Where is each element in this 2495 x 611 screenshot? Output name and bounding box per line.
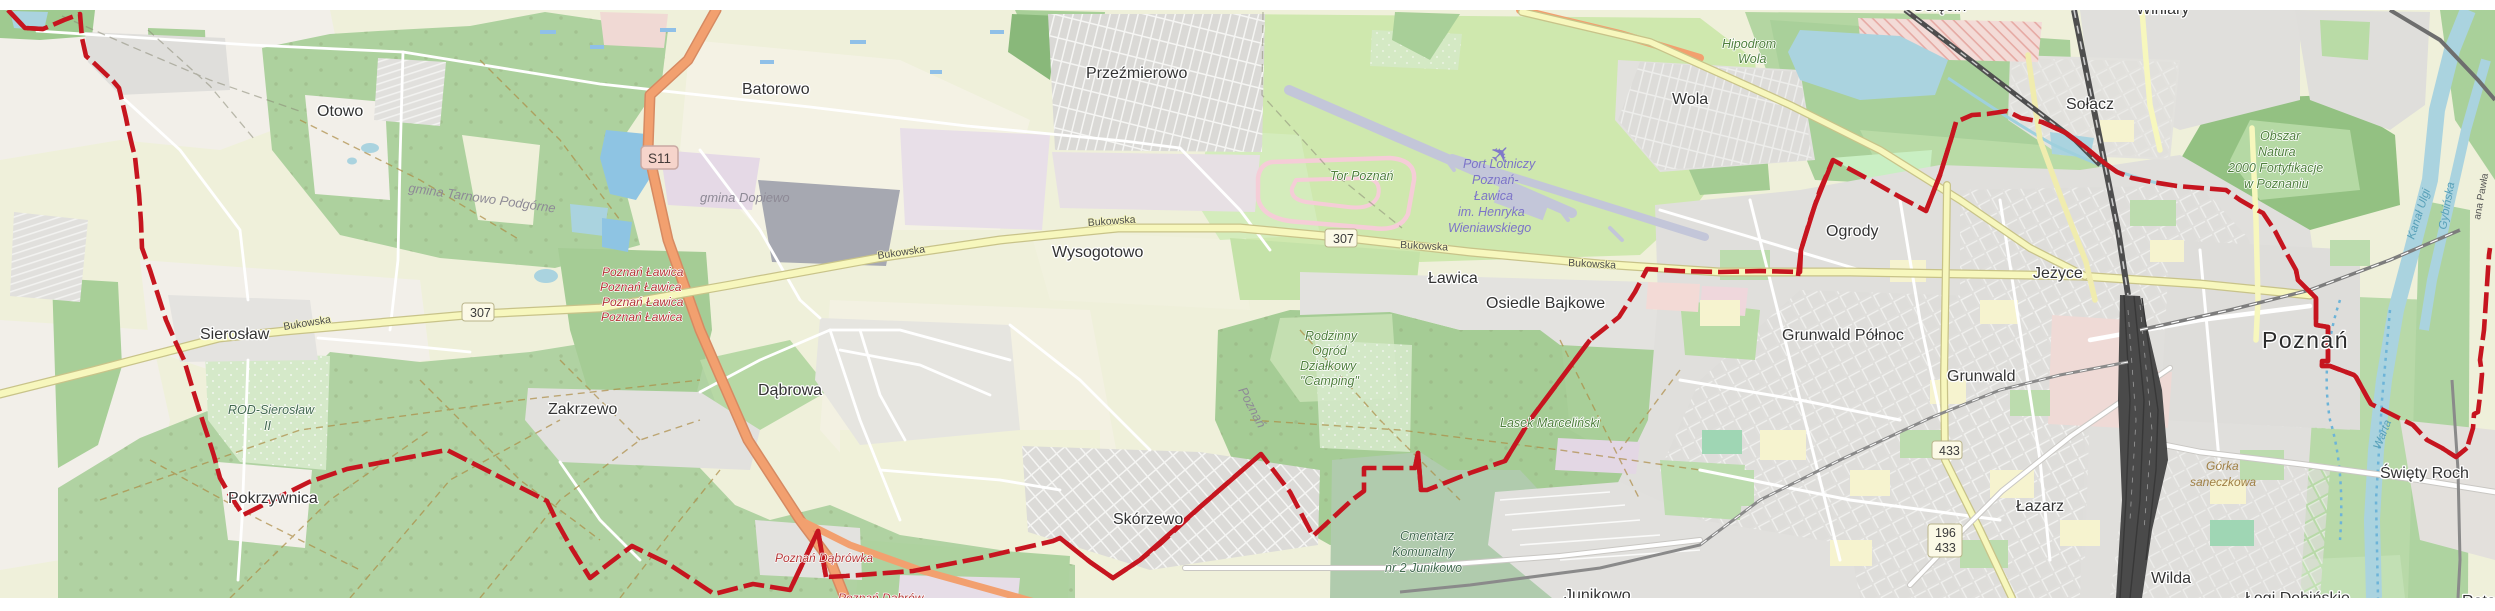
svg-text:nr 2 Junikowo: nr 2 Junikowo [1385, 561, 1462, 575]
svg-text:Poznań-: Poznań- [1472, 173, 1519, 187]
svg-text:Łazarz: Łazarz [2016, 498, 2064, 515]
svg-text:Zakrzewo: Zakrzewo [548, 401, 617, 418]
svg-text:433: 433 [1939, 444, 1960, 458]
svg-text:Osiedle Bajkowe: Osiedle Bajkowe [1486, 295, 1605, 312]
svg-text:Lasek Marceliński: Lasek Marceliński [1500, 416, 1601, 430]
svg-text:Tor Poznań: Tor Poznań [1330, 169, 1394, 183]
svg-text:Bukowska: Bukowska [1568, 257, 1617, 271]
svg-text:Wola: Wola [1738, 52, 1767, 66]
svg-text:Wilda: Wilda [2151, 570, 2191, 587]
svg-text:w Poznaniu: w Poznaniu [2244, 177, 2309, 191]
svg-text:S11: S11 [648, 151, 671, 166]
svg-text:Bukowska: Bukowska [1400, 239, 1449, 253]
svg-text:Ławica: Ławica [1428, 270, 1478, 287]
svg-text:307: 307 [1333, 232, 1354, 246]
svg-text:Poznań Ławica: Poznań Ławica [601, 310, 683, 324]
svg-text:Rodzinny: Rodzinny [1305, 329, 1358, 343]
svg-text:Poznań Ławica: Poznań Ławica [600, 280, 682, 294]
svg-text:Pokrzywnica: Pokrzywnica [228, 490, 318, 507]
svg-text:Natura: Natura [2258, 145, 2296, 159]
svg-text:Święty Roch: Święty Roch [2380, 463, 2469, 482]
svg-text:ROD-Sierosław: ROD-Sierosław [228, 403, 315, 417]
svg-text:Ławica: Ławica [1474, 189, 1513, 203]
svg-text:Ogród: Ogród [1312, 344, 1348, 358]
svg-text:Skórzewo: Skórzewo [1113, 511, 1183, 528]
svg-text:Otowo: Otowo [317, 103, 363, 120]
svg-text:Przeźmierowo: Przeźmierowo [1086, 65, 1187, 82]
svg-text:im. Henryka: im. Henryka [1458, 205, 1525, 219]
svg-text:Wola: Wola [1672, 91, 1708, 108]
svg-text:Hipodrom: Hipodrom [1722, 37, 1776, 51]
svg-text:Batorowo: Batorowo [742, 81, 810, 98]
svg-text:Wieniawskiego: Wieniawskiego [1448, 221, 1531, 235]
svg-text:Grunwald: Grunwald [1947, 368, 2015, 385]
svg-text:433: 433 [1935, 541, 1956, 555]
svg-text:Sierosław: Sierosław [200, 326, 270, 343]
svg-text:Ogrody: Ogrody [1826, 223, 1878, 240]
svg-text:Poznań: Poznań [2262, 327, 2349, 353]
svg-text:307: 307 [470, 306, 491, 320]
svg-text:2000 Fortyfikacje: 2000 Fortyfikacje [2227, 161, 2323, 175]
svg-text:Poznań Dąbrówka: Poznań Dąbrówka [775, 551, 873, 565]
svg-text:saneczkowa: saneczkowa [2190, 475, 2256, 489]
svg-text:Dąbrowa: Dąbrowa [758, 382, 822, 399]
svg-text:gmina Dopiewo: gmina Dopiewo [700, 190, 790, 205]
svg-text:Poznań Ławica: Poznań Ławica [602, 265, 684, 279]
svg-text:Jeżyce: Jeżyce [2033, 265, 2083, 282]
svg-text:Działkowy: Działkowy [1300, 359, 1357, 373]
svg-text:Sołacz: Sołacz [2066, 96, 2114, 113]
svg-text:196: 196 [1935, 526, 1956, 540]
svg-text:"Camping": "Camping" [1300, 374, 1359, 388]
svg-text:Cmentarz: Cmentarz [1400, 529, 1455, 543]
svg-text:Komunalny: Komunalny [1392, 545, 1455, 559]
svg-text:Grunwald Północ: Grunwald Północ [1782, 327, 1904, 344]
svg-text:Obszar: Obszar [2260, 129, 2301, 143]
svg-text:Wysogotowo: Wysogotowo [1052, 244, 1144, 261]
svg-text:II: II [264, 419, 271, 433]
svg-text:Poznań Ławica: Poznań Ławica [602, 295, 684, 309]
svg-text:Górka: Górka [2206, 459, 2239, 473]
